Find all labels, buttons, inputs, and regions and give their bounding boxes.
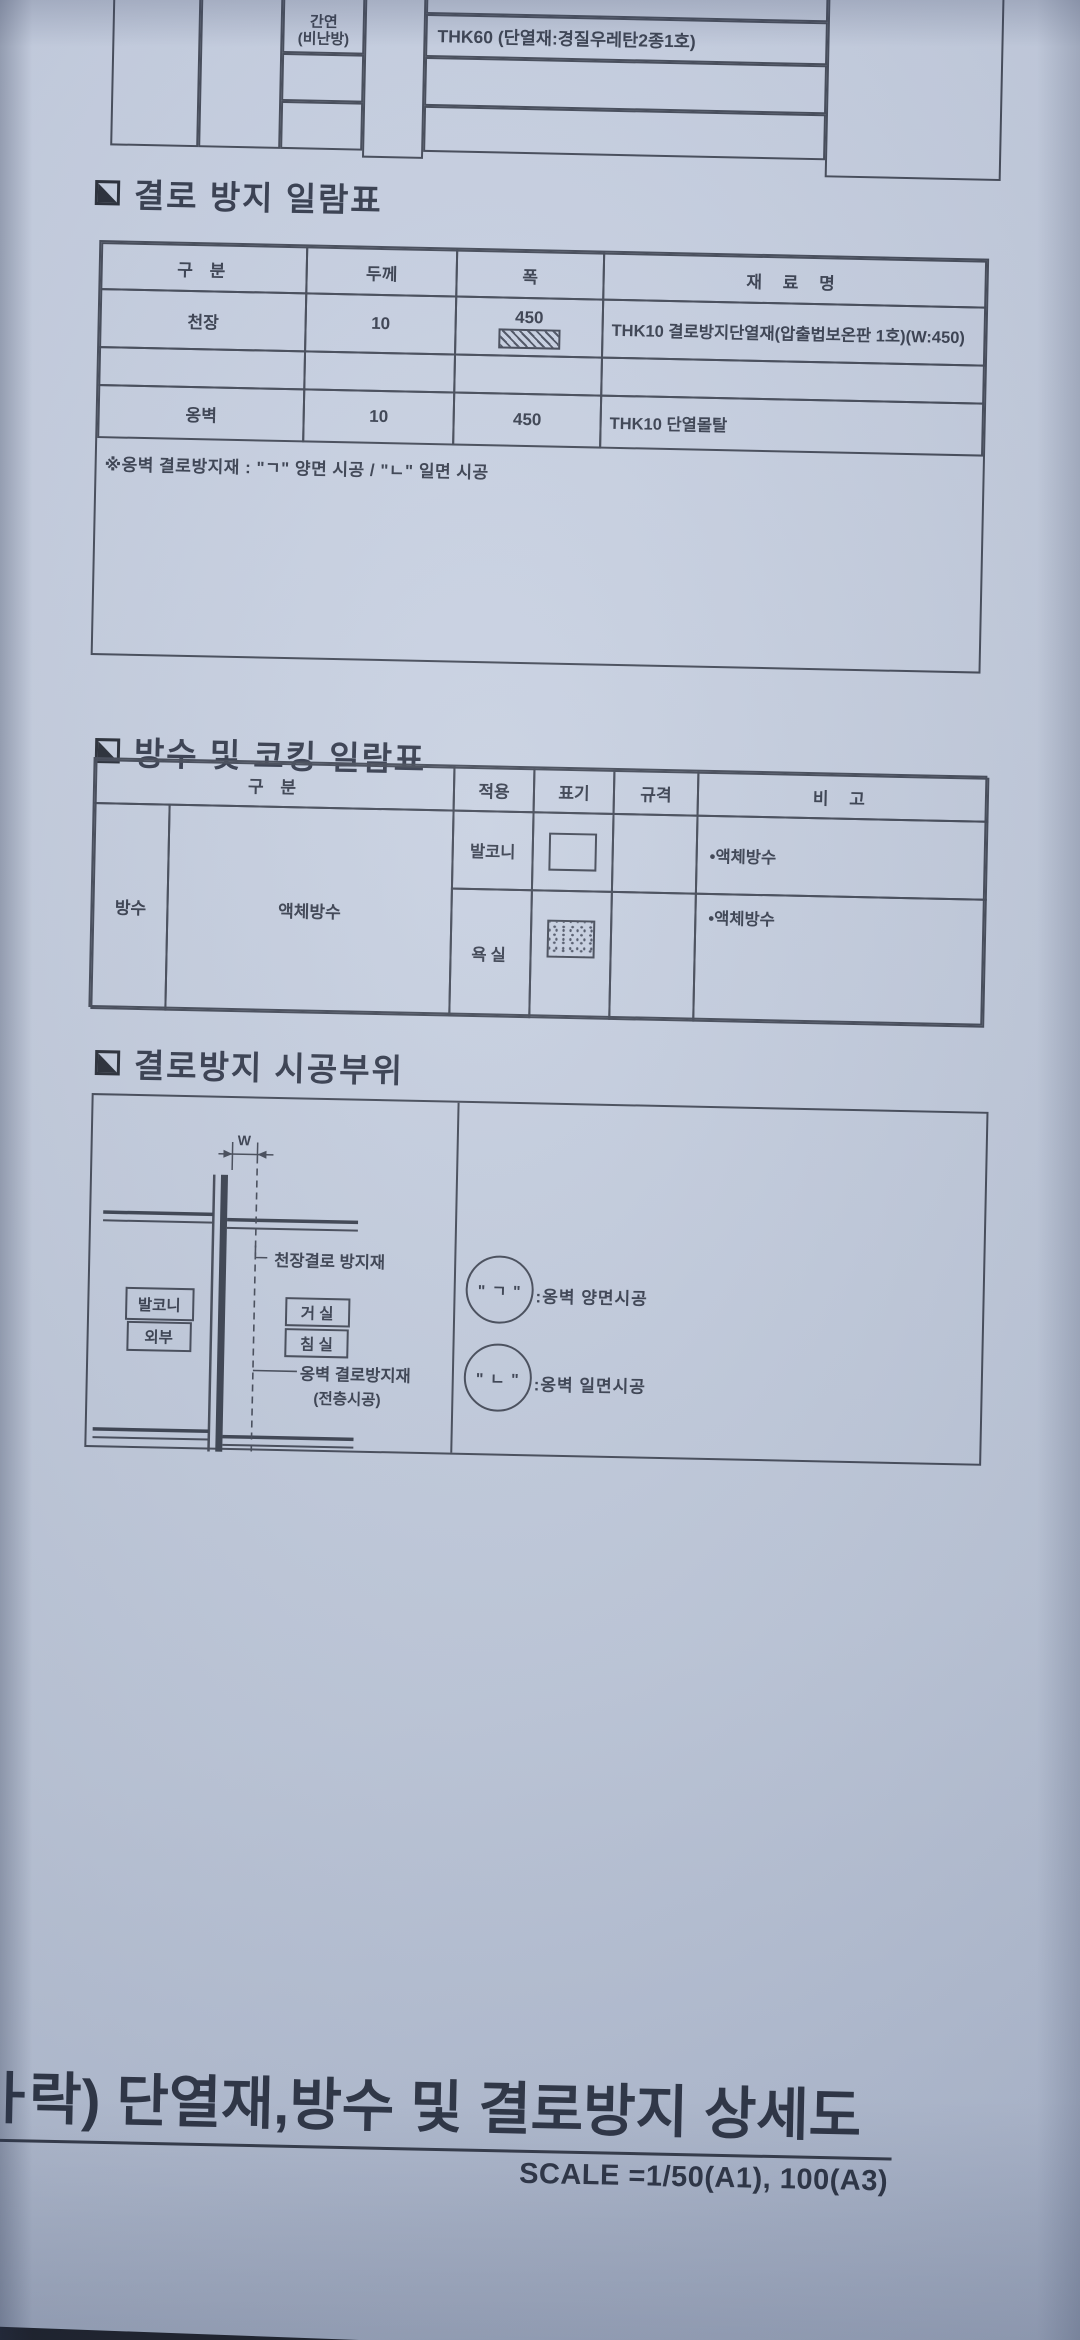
condensation-section-title: 결로 방지 일람표 (94, 168, 383, 222)
remark-cell: •액체방수 (692, 893, 987, 1028)
application-cell: 발코니 (451, 810, 535, 892)
insulation-table-partial: 간연 (비난방) THK60 (단열재:경질우레탄2종1호) (0, 0, 1012, 196)
dim-arrow-icon (223, 1150, 232, 1158)
stippled-box-mark-icon (547, 920, 596, 959)
wall-line (103, 1219, 213, 1223)
table-cell (198, 0, 284, 149)
table-cell (110, 0, 202, 147)
sheet-title-text: 락) 단열재,방수 및 결로방지 상세도 (28, 2067, 861, 2148)
table-cell (362, 0, 427, 159)
leader-line (253, 1370, 297, 1371)
legend-label: :옹벽 양면시공 (535, 1282, 648, 1309)
remark-cell: •액체방수 (695, 815, 989, 901)
table-cell-partition-label: 간연 (비난방) (282, 0, 366, 55)
scale-note: SCALE =1/50(A1), 100(A3) (519, 2158, 888, 2199)
col-header: 표기 (533, 768, 616, 815)
spec-cell (608, 891, 697, 1022)
dim-extension-line (232, 1142, 233, 1170)
table-cell (424, 57, 827, 114)
balcony-label: 발코니 (138, 1296, 181, 1315)
leader-line (255, 1246, 267, 1258)
waterproof-table: 구 분 적용 표기 규격 비 고 방수 액체방수 발코니 •액체방수 욕실 •액… (88, 757, 987, 1026)
wall-line (93, 1427, 209, 1433)
clipped-character: ㅏ (0, 2067, 30, 2132)
remark-text: •액체방수 (708, 905, 775, 930)
col-header: 적용 (453, 767, 536, 814)
diagram-box: W 천장결로 방지재 발코니 외부 거 실 침 실 옹벽 결로방지재 (전층시공… (84, 1093, 988, 1466)
spec-cell (611, 813, 699, 895)
legend-label: :옹벽 일면시공 (533, 1370, 646, 1397)
ceiling-insulation-label: 천장결로 방지재 (274, 1251, 385, 1272)
table-edge-shadow (0, 2319, 590, 2340)
legend-symbol-text: " ㄴ " (476, 1365, 520, 1390)
legend-symbol-nieun: " ㄴ " (463, 1343, 532, 1412)
remark-text: •액체방수 (709, 843, 776, 868)
wall-line (92, 1436, 208, 1440)
wall-insulation-label: 옹벽 결로방지재 (300, 1364, 411, 1385)
table-cell (423, 106, 826, 160)
row-width: 450 (452, 391, 602, 448)
table-cell (281, 53, 364, 103)
col-header: 폭 (455, 250, 605, 301)
wall-line (207, 1175, 215, 1452)
row-category: 천장 (99, 288, 307, 352)
empty-box-mark-icon (548, 833, 597, 872)
row-width: 450 (454, 296, 604, 359)
exterior-label: 외부 (144, 1328, 173, 1347)
wall-line (103, 1210, 213, 1216)
partition-label-line1: 간연 (298, 13, 350, 31)
condensation-table: 구 분 두께 폭 재 료 명 천장 10 450 THK10 결로방지단열재(압… (91, 240, 989, 674)
plan-detail-drawing: W 천장결로 방지재 발코니 외부 거 실 침 실 옹벽 결로방지재 (전층시공… (86, 1095, 457, 1457)
diagram-section-title: 결로방지 시공부위 (94, 1038, 404, 1092)
mark-cell (528, 889, 613, 1020)
table-cell (280, 101, 363, 151)
wall-line (223, 1435, 354, 1441)
material-text: THK10 단열몰탈 (609, 410, 727, 436)
row-width (453, 353, 603, 396)
material-text: THK60 (단열재:경질우레탄2종1호) (437, 23, 696, 53)
partition-label-line2: (비난방) (298, 30, 350, 48)
dimension-label: W (238, 1132, 252, 1148)
row-thickness: 10 (304, 292, 457, 355)
wall-line (227, 1218, 358, 1224)
section-title-text: 결로 방지 일람표 (133, 169, 383, 222)
living-room-label: 거 실 (301, 1304, 334, 1323)
row-material: THK10 단열몰탈 (599, 395, 984, 457)
width-value: 450 (515, 308, 544, 329)
subgroup-cell: 액체방수 (164, 804, 454, 1017)
table-footnote: ※옹벽 결로방지재 : "ㄱ" 양면 시공 / "ㄴ" 일면 시공 (104, 450, 488, 483)
row-thickness: 10 (302, 388, 455, 445)
wall-insulation-sublabel: (전층시공) (313, 1390, 381, 1409)
bedroom-label: 침 실 (300, 1334, 333, 1354)
table-cell (825, 0, 1006, 181)
col-header: 구 분 (100, 242, 308, 294)
application-cell: 욕실 (448, 888, 533, 1019)
wall-line-thick (215, 1175, 228, 1452)
dim-arrow-icon (257, 1151, 266, 1159)
dashed-zone-line (251, 1157, 257, 1453)
diagonal-hatch-swatch-icon (498, 328, 560, 349)
row-category: 옹벽 (97, 384, 305, 442)
section-bullet-icon (95, 1050, 121, 1076)
section-title-text: 결로방지 시공부위 (133, 1039, 404, 1093)
mark-cell (531, 811, 615, 893)
group-cell: 방수 (90, 802, 170, 1011)
row-thickness (303, 350, 456, 393)
wall-line (222, 1444, 353, 1449)
legend-symbol-text: " ㄱ " (478, 1277, 522, 1302)
wall-line (227, 1227, 358, 1232)
row-material: THK10 결로방지단열재(압출법보온판 1호)(W:450) (601, 299, 986, 367)
col-header: 규격 (613, 770, 700, 817)
sheet-footer: ㅏ락) 단열재,방수 및 결로방지 상세도 SCALE =1/50(A1), 1… (0, 2042, 1002, 2234)
sheet-title: ㅏ락) 단열재,방수 및 결로방지 상세도 (0, 2053, 862, 2153)
material-text: THK10 결로방지단열재(압출법보온판 1호)(W:450) (611, 317, 965, 348)
col-header: 두께 (305, 246, 458, 297)
section-bullet-icon (95, 180, 121, 206)
legend-symbol-giyeok: " ㄱ " (465, 1255, 534, 1324)
photographed-drawing-sheet: 간연 (비난방) THK60 (단열재:경질우레탄2종1호) 결로 방지 일람표… (0, 0, 1080, 2340)
